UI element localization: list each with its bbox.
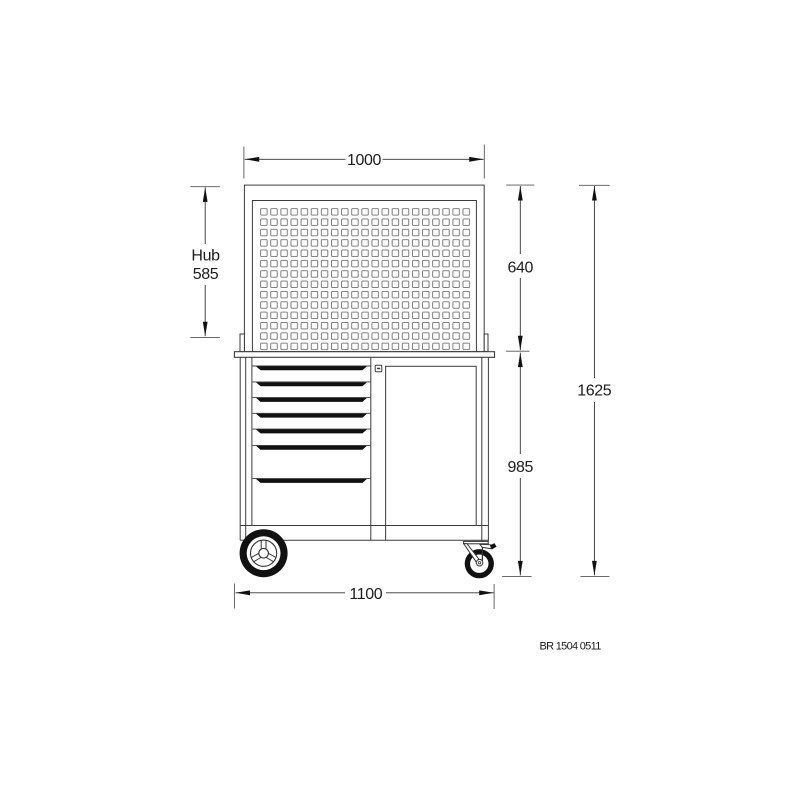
svg-text:985: 985: [508, 459, 534, 476]
svg-text:1100: 1100: [349, 586, 382, 603]
svg-text:Hub: Hub: [191, 248, 220, 265]
svg-text:640: 640: [508, 259, 534, 276]
svg-text:BR 1504 0511: BR 1504 0511: [540, 641, 602, 653]
svg-text:1000: 1000: [347, 152, 381, 169]
svg-text:1625: 1625: [577, 383, 611, 400]
svg-text:585: 585: [193, 266, 219, 283]
